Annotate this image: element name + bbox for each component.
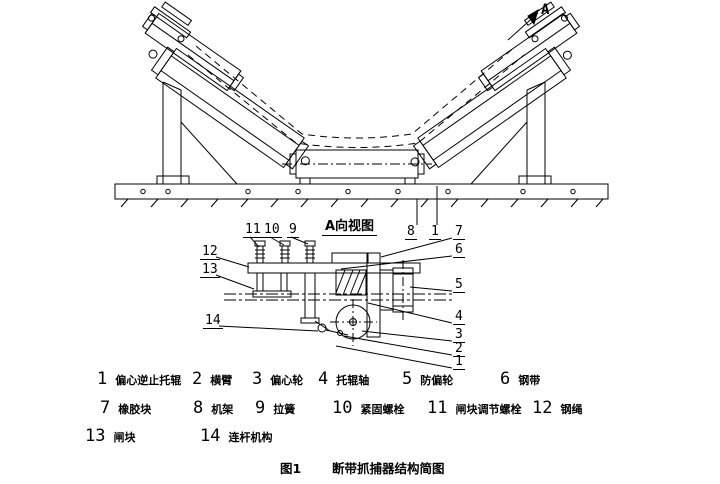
view-direction-label: A xyxy=(541,2,549,18)
center-roller xyxy=(282,150,432,184)
ground-hatch xyxy=(121,199,603,207)
spring-studs xyxy=(255,241,315,263)
legend-label: 机架 xyxy=(211,400,233,416)
callout-6: 6 xyxy=(453,243,465,258)
callout-8: 8 xyxy=(405,225,417,240)
legend-item-10: 10 紧固螺栓 xyxy=(332,400,404,417)
legend-item-12: 12 钢绳 xyxy=(532,400,582,417)
legend-label: 横臂 xyxy=(210,371,232,387)
legend-item-1: 1 偏心逆止托辊 xyxy=(97,371,181,388)
legend-label: 拉簧 xyxy=(273,400,295,416)
legend-label: 偏心轮 xyxy=(270,371,303,387)
caption-prefix: 图1 xyxy=(280,458,301,477)
caption-title: 断带抓捕器结构简图 xyxy=(332,458,445,477)
legend-num: 9 xyxy=(255,400,265,417)
callout-11: 11 xyxy=(243,223,263,238)
legend-label: 钢带 xyxy=(518,371,540,387)
legend-label: 闸块调节螺栓 xyxy=(455,400,521,416)
legend-item-3: 3 偏心轮 xyxy=(252,371,303,388)
legend-num: 8 xyxy=(193,400,203,417)
legend-num: 10 xyxy=(332,400,352,417)
legend-num: 2 xyxy=(192,371,202,388)
legend-item-13: 13 闸块 xyxy=(85,428,135,445)
legend-item-7: 7 橡胶块 xyxy=(100,400,151,417)
callout-14: 14 xyxy=(203,314,223,329)
callout-4: 4 xyxy=(453,310,465,325)
figure-canvas: A A向视图 11 10 9 8 1 12 13 14 7 6 5 4 3 2 … xyxy=(0,0,720,484)
detail-view-title: A向视图 xyxy=(322,215,377,236)
legend-num: 6 xyxy=(500,371,510,388)
callout-1-right: 1 xyxy=(453,355,465,370)
legend-item-5: 5 防偏轮 xyxy=(402,371,453,388)
legend-item-9: 9 拉簧 xyxy=(255,400,295,417)
left-roller-assembly xyxy=(139,37,319,178)
legend-num: 11 xyxy=(427,400,447,417)
legend-item-4: 4 托辊轴 xyxy=(318,371,369,388)
legend-label: 紧固螺栓 xyxy=(360,400,404,416)
callout-5: 5 xyxy=(453,278,465,293)
linkage-column xyxy=(301,273,319,323)
legend-item-8: 8 机架 xyxy=(193,400,233,417)
callout-12: 12 xyxy=(200,245,220,260)
legend-num: 5 xyxy=(402,371,412,388)
callout-1-top: 1 xyxy=(429,225,441,240)
legend-num: 14 xyxy=(200,428,220,445)
detail-view xyxy=(216,237,452,368)
left-frame-column xyxy=(157,82,237,184)
brake-block-bracket xyxy=(253,273,291,297)
detail-leader-lines xyxy=(216,237,452,368)
legend-label: 防偏轮 xyxy=(420,371,453,387)
legend-item-14: 14 连杆机构 xyxy=(200,428,272,445)
legend-num: 12 xyxy=(532,400,552,417)
callout-13: 13 xyxy=(200,263,220,278)
legend-num: 1 xyxy=(97,371,107,388)
right-roller-assembly xyxy=(401,38,581,179)
legend-label: 闸块 xyxy=(113,428,135,444)
top-view xyxy=(115,0,608,225)
legend-num: 7 xyxy=(100,400,110,417)
legend-label: 托辊轴 xyxy=(336,371,369,387)
legend-label: 偏心逆止托辊 xyxy=(115,371,181,387)
callout-7: 7 xyxy=(453,225,465,240)
legend-num: 4 xyxy=(318,371,328,388)
linkage-mechanism xyxy=(315,321,348,336)
legend-item-2: 2 横臂 xyxy=(192,371,232,388)
base-plate xyxy=(115,184,608,207)
legend-num: 3 xyxy=(252,371,262,388)
legend-label: 钢绳 xyxy=(560,400,582,416)
guide-cylinder xyxy=(380,260,413,320)
frame-ref-leaders xyxy=(417,186,437,225)
eccentric-wheel xyxy=(330,299,377,346)
legend-label: 连杆机构 xyxy=(228,428,272,444)
callout-9: 9 xyxy=(287,223,299,238)
legend-item-11: 11 闸块调节螺栓 xyxy=(427,400,521,417)
callout-10: 10 xyxy=(262,223,282,238)
legend-item-6: 6 钢带 xyxy=(500,371,540,388)
legend-label: 橡胶块 xyxy=(118,400,151,416)
legend-num: 13 xyxy=(85,428,105,445)
